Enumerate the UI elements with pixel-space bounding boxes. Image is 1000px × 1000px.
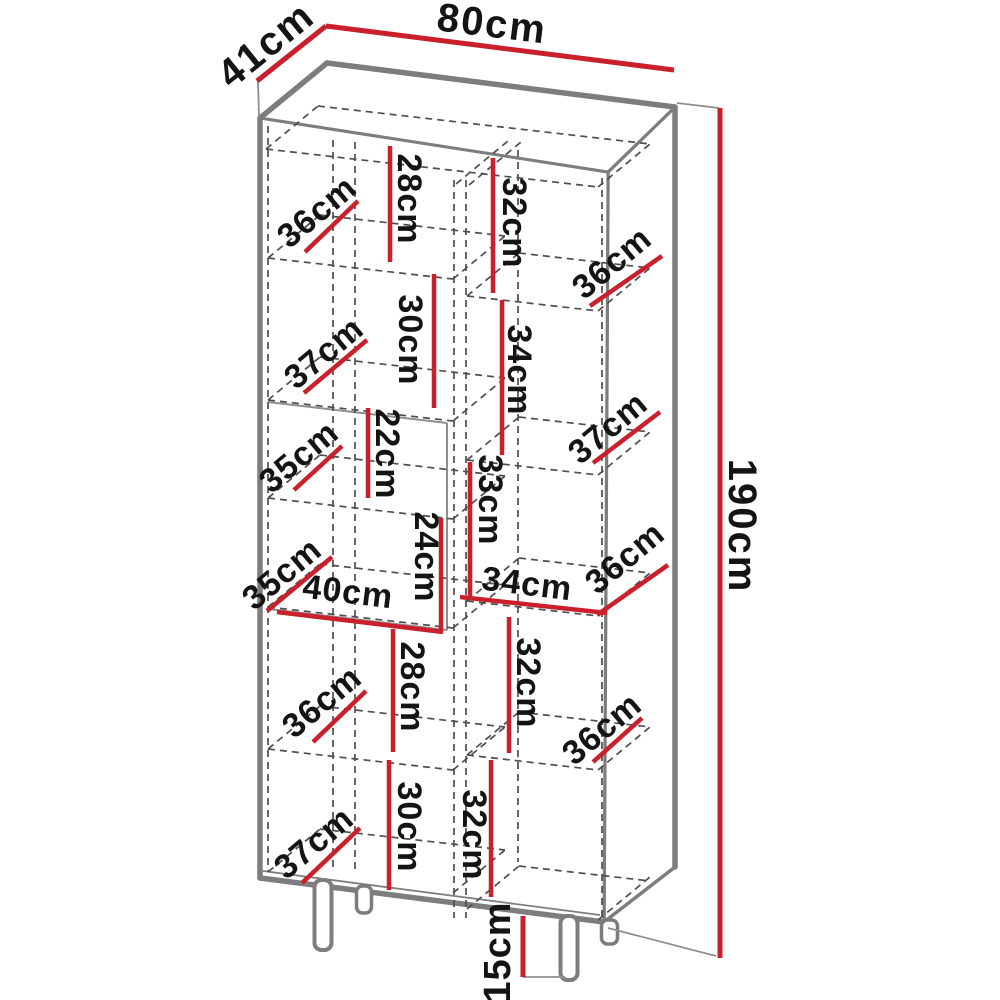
dim-label-33cm-R3: 33cm [473, 455, 507, 546]
dim-label-30cm-L2: 30cm [393, 295, 427, 386]
dim-label-32cm-R6: 32cm [457, 790, 491, 881]
leg-back-right [602, 920, 618, 944]
dim-label-30cm-L6: 30cm [392, 782, 426, 873]
dim-label-28cm-L5: 28cm [395, 642, 429, 733]
leg-front-left [315, 880, 332, 950]
dim-label-legs-15cm: 15cm [479, 901, 517, 1000]
dim-label-28cm-L1: 28cm [392, 154, 426, 245]
furniture-dimension-diagram: 41cm 80cm 190cm 15cm 36cm 28cm 32cm 36cm… [0, 0, 1000, 1000]
dim-label-32cm-R5: 32cm [511, 638, 545, 729]
leg-back-left [357, 886, 372, 913]
dim-label-height-190cm: 190cm [722, 459, 762, 594]
dim-label-34cm-R2: 34cm [502, 325, 536, 416]
dim-label-22cm-L3: 22cm [370, 409, 404, 500]
dim-label-32cm-R1: 32cm [497, 178, 531, 269]
leg-front-right [561, 916, 578, 980]
dim-label-24cm-L4: 24cm [409, 512, 443, 603]
